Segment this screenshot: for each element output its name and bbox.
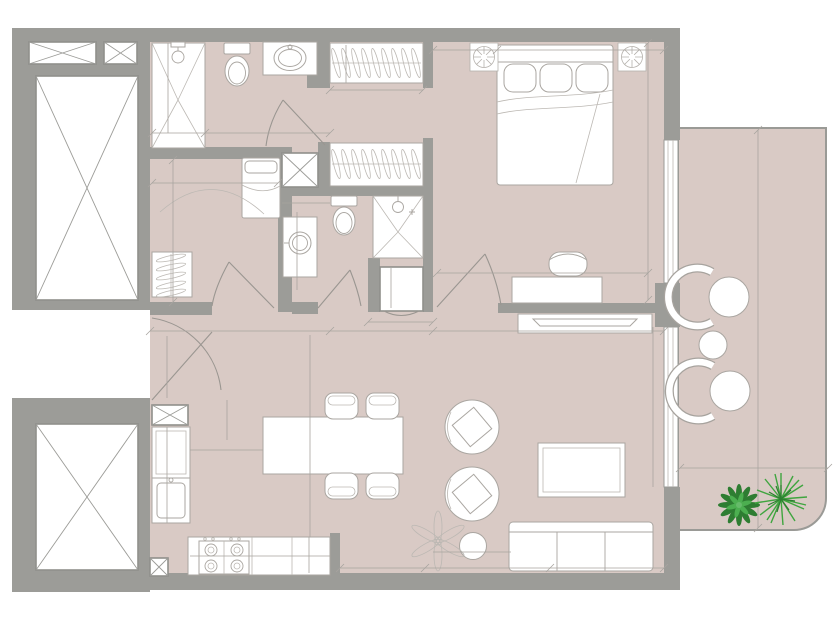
toilet-icon — [224, 43, 250, 86]
kitchen-sink — [157, 483, 185, 518]
ceiling-fan-icon — [618, 43, 646, 71]
wall-segment — [368, 258, 380, 312]
desk — [512, 277, 602, 303]
wall-segment — [292, 302, 318, 314]
wall-segment — [150, 302, 212, 315]
bedroom-window — [664, 140, 678, 283]
ceiling-fan-icon — [470, 43, 498, 71]
armchair — [445, 467, 499, 521]
floor-plan — [0, 0, 836, 619]
balcony-table — [699, 331, 727, 359]
dining-table — [263, 417, 403, 474]
tv-icon — [533, 319, 637, 326]
wall-segment — [318, 142, 330, 188]
armchair — [445, 400, 499, 454]
tv-console — [518, 314, 652, 333]
wall-right-bottom — [664, 487, 680, 575]
wall-bottom — [136, 573, 680, 590]
floor-plan-canvas — [0, 0, 836, 619]
wardrobe-top — [330, 43, 423, 83]
wall-segment — [423, 138, 433, 312]
shower-stall-maid — [373, 196, 423, 258]
toilet-icon — [331, 196, 357, 235]
wardrobe-hall — [330, 143, 423, 186]
wardrobe-maid — [152, 252, 192, 298]
wall-segment — [423, 42, 433, 88]
wall-segment — [150, 147, 278, 159]
wall-segment — [330, 533, 340, 577]
coffee-table — [538, 443, 625, 497]
sink-icon — [283, 217, 317, 277]
service-shaft — [380, 267, 423, 311]
wall-right-top — [664, 42, 680, 140]
wall-bedroom-living — [498, 303, 664, 313]
wall-top — [136, 28, 680, 42]
side-table — [460, 533, 487, 560]
double-bed — [497, 45, 613, 185]
sink-icon — [263, 42, 317, 75]
sofa — [509, 522, 653, 571]
shower-stall-main — [152, 42, 205, 148]
desk-chair — [549, 252, 587, 276]
